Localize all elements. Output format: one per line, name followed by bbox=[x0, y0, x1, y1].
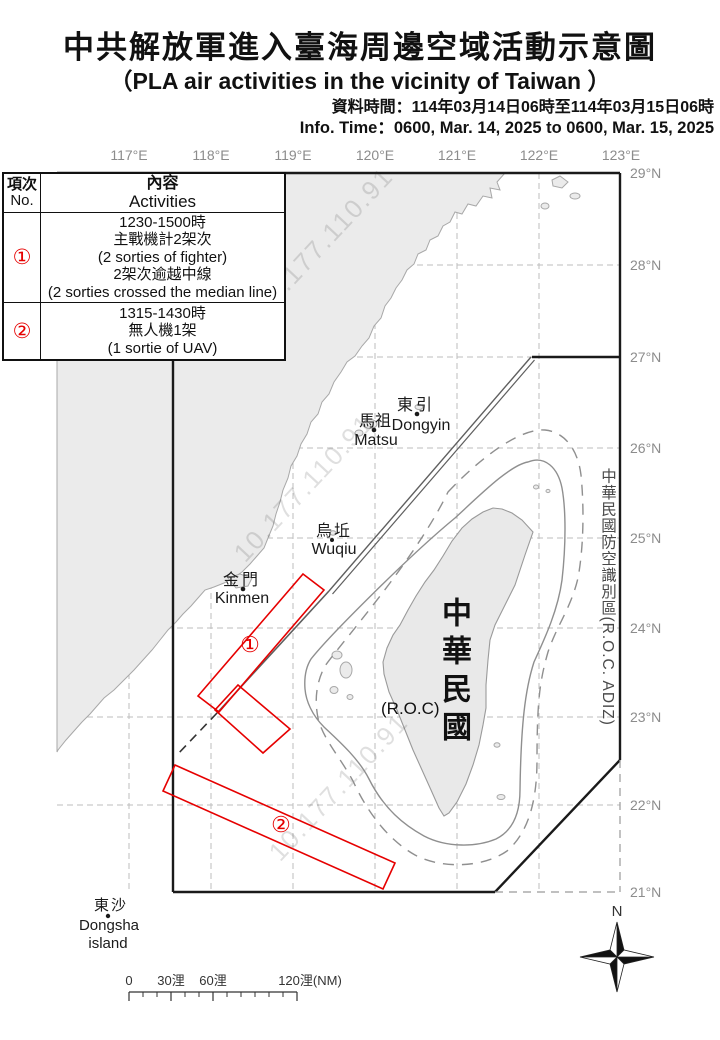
svg-text:119°E: 119°E bbox=[274, 147, 311, 163]
row2-activity: 1315-1430時 無人機1架 (1 sortie of UAV) bbox=[41, 303, 284, 359]
activity-area-1-box bbox=[215, 685, 290, 753]
adiz-zone-label: 中華民國防空識別區(R.O.C. ADIZ) bbox=[596, 468, 618, 726]
svg-text:23°N: 23°N bbox=[630, 709, 661, 725]
dongyin-dot bbox=[415, 412, 420, 417]
svg-text:25°N: 25°N bbox=[630, 530, 661, 546]
col-header-no: 項次 No. bbox=[4, 174, 41, 212]
svg-text:121°E: 121°E bbox=[438, 147, 476, 163]
row1-number: ① bbox=[4, 213, 41, 302]
dongsha-label-group: 東沙 Dongsha island bbox=[79, 897, 140, 952]
matsu-label-zh: 馬祖 bbox=[359, 412, 391, 430]
compass-north-label: N bbox=[612, 903, 623, 920]
svg-text:10.177.110.91: 10.177.110.91 bbox=[263, 707, 415, 867]
svg-text:28°N: 28°N bbox=[630, 257, 661, 273]
row1-activity: 1230-1500時 主戰機計2架次 (2 sorties of fighter… bbox=[41, 213, 284, 302]
info-time-en: Info. Time：0600, Mar. 14, 2025 to 0600, … bbox=[300, 114, 714, 138]
wuqiu-label-zh: 烏坵 bbox=[316, 522, 352, 540]
svg-text:117°E: 117°E bbox=[110, 147, 147, 163]
svg-text:118°E: 118°E bbox=[192, 147, 229, 163]
longitude-labels: 117°E 118°E 119°E 120°E 121°E 122°E 123°… bbox=[110, 147, 640, 163]
svg-text:122°E: 122°E bbox=[520, 147, 558, 163]
svg-text:0: 0 bbox=[125, 973, 132, 988]
kinmen-label-en: Kinmen bbox=[215, 590, 269, 607]
svg-text:120浬(NM): 120浬(NM) bbox=[278, 973, 342, 988]
dongyin-label-en: Dongyin bbox=[392, 417, 451, 434]
activity-marker-2: ② bbox=[271, 812, 291, 837]
kinmen-label-zh: 金門 bbox=[223, 571, 261, 589]
activities-table: 項次 No. 內容 Activities ① 1230-1500時 主戰機計2架… bbox=[2, 172, 286, 361]
dongsha-label-zh: 東沙 bbox=[94, 897, 128, 914]
scale-bar-labels: 0 30浬 60浬 120浬(NM) bbox=[125, 973, 341, 988]
latitude-labels: 29°N 28°N 27°N 26°N 25°N 24°N 23°N 22°N … bbox=[630, 165, 661, 900]
table-row-2: ② 1315-1430時 無人機1架 (1 sortie of UAV) bbox=[4, 302, 284, 359]
activities-table-header: 項次 No. 內容 Activities bbox=[4, 174, 284, 212]
svg-text:120°E: 120°E bbox=[356, 147, 394, 163]
svg-text:26°N: 26°N bbox=[630, 440, 661, 456]
svg-text:27°N: 27°N bbox=[630, 349, 661, 365]
svg-text:30浬: 30浬 bbox=[157, 973, 184, 988]
activity-marker-1: ① bbox=[240, 632, 260, 657]
svg-text:22°N: 22°N bbox=[630, 797, 661, 813]
svg-text:29°N: 29°N bbox=[630, 165, 661, 181]
col-header-activities: 內容 Activities bbox=[41, 174, 284, 212]
row2-number: ② bbox=[4, 303, 41, 359]
page-title-en: （PLA air activities in the vicinity of T… bbox=[0, 62, 720, 96]
matsu-label-en: Matsu bbox=[354, 432, 398, 449]
svg-text:60浬: 60浬 bbox=[199, 973, 226, 988]
dongsha-label-en: Dongsha bbox=[79, 917, 140, 934]
wuqiu-label-en: Wuqiu bbox=[311, 541, 356, 558]
page-title-zh: 中共解放軍進入臺海周邊空域活動示意圖 bbox=[0, 22, 720, 67]
roc-country-label: 中華民國 bbox=[431, 597, 475, 749]
roc-label-en: (R.O.C) bbox=[381, 699, 440, 719]
pla-activity-map-page: 10.177.110.91 10.177.110.91 10.177.110.9… bbox=[0, 0, 720, 1040]
compass-rose bbox=[580, 922, 654, 992]
dongyin-label-zh: 東引 bbox=[397, 396, 435, 414]
svg-text:123°E: 123°E bbox=[602, 147, 640, 163]
svg-text:21°N: 21°N bbox=[630, 884, 661, 900]
dongsha-label-en2: island bbox=[88, 935, 127, 952]
table-row-1: ① 1230-1500時 主戰機計2架次 (2 sorties of fight… bbox=[4, 212, 284, 302]
scale-bar bbox=[129, 992, 297, 1001]
svg-text:24°N: 24°N bbox=[630, 620, 661, 636]
